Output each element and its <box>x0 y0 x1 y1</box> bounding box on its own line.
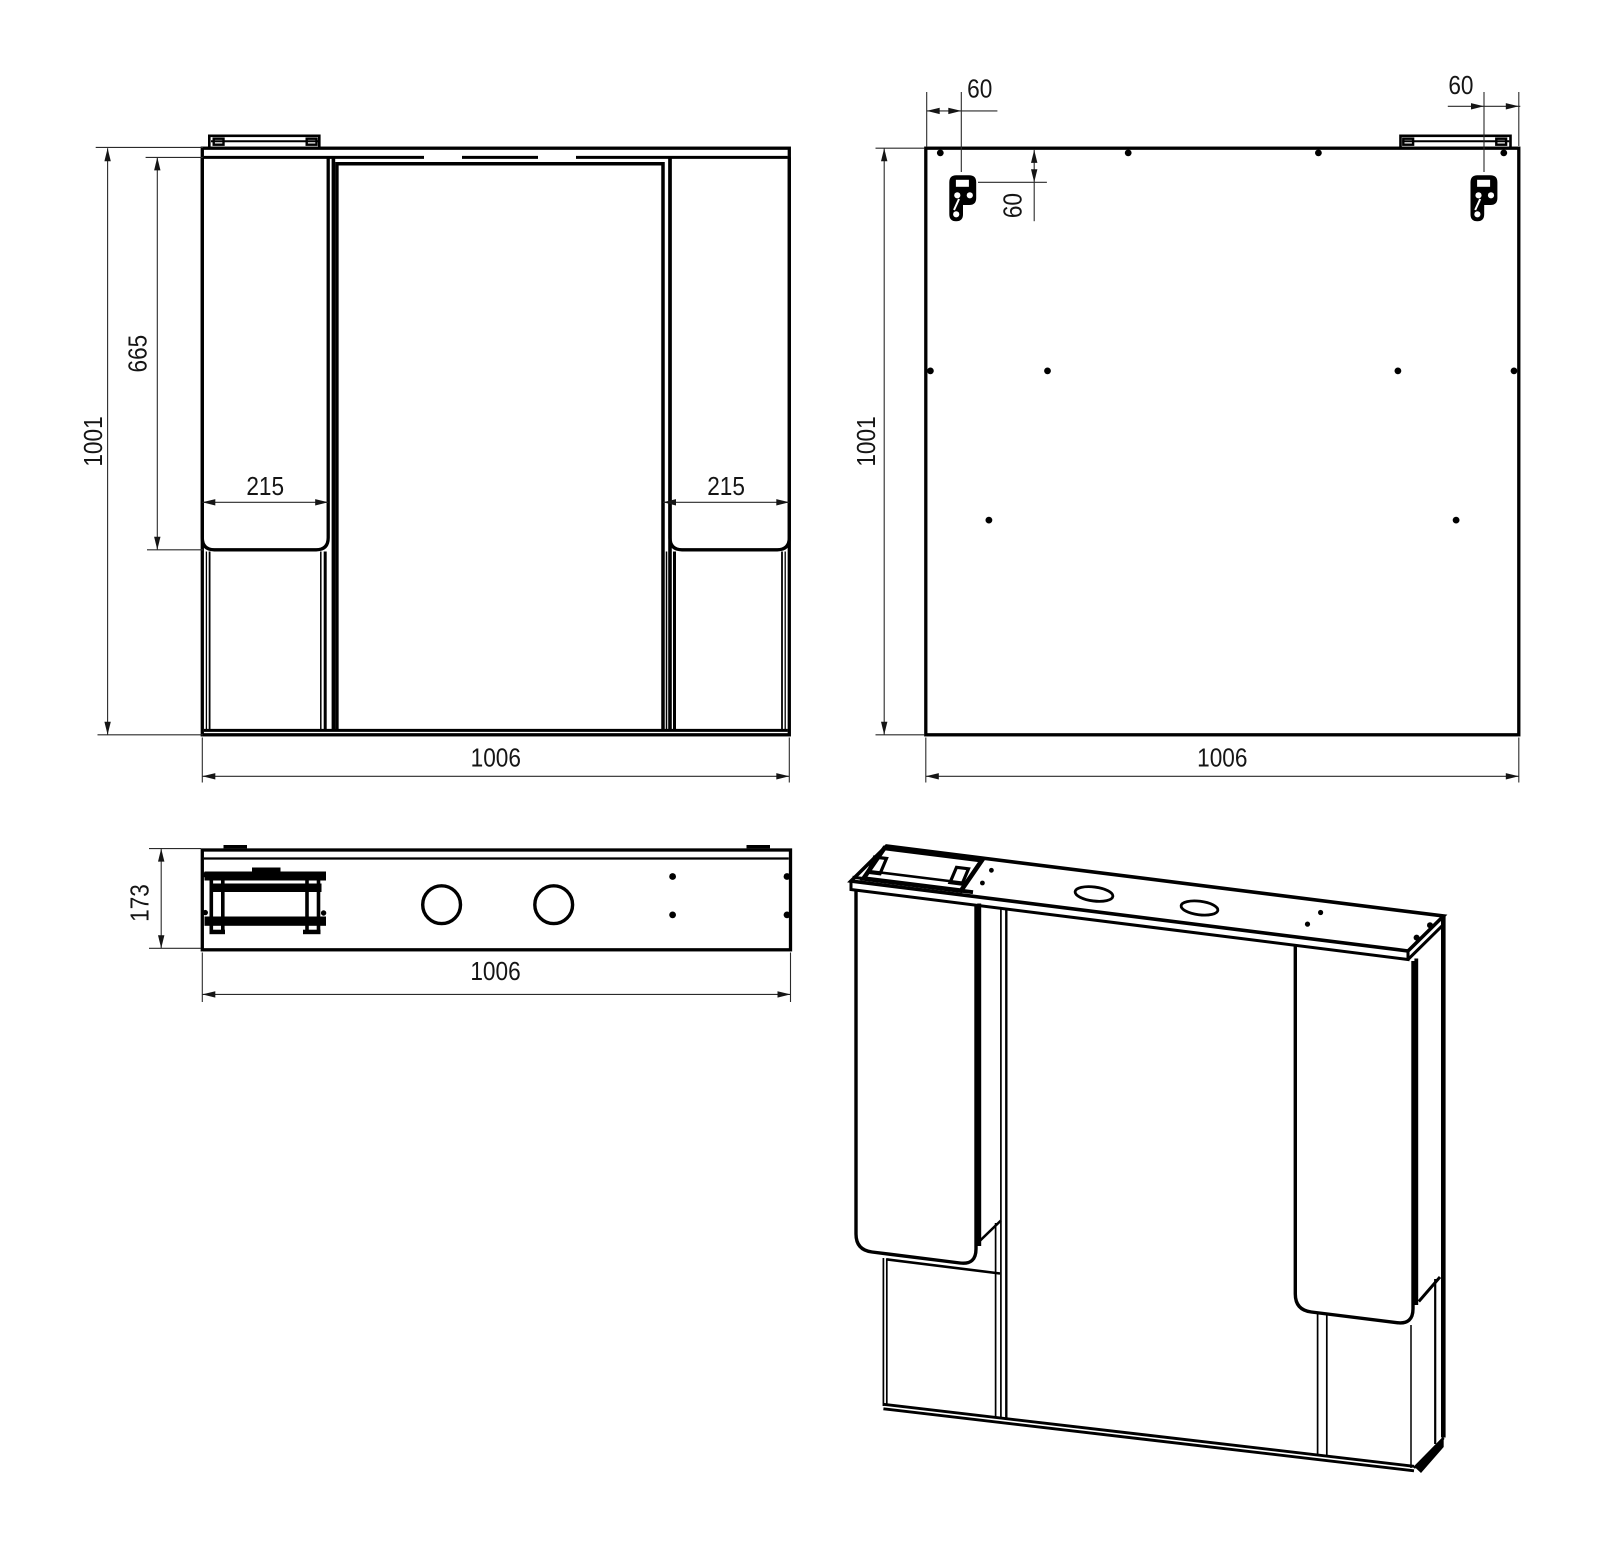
svg-text:665: 665 <box>124 335 153 373</box>
svg-text:173: 173 <box>126 884 155 922</box>
svg-text:1001: 1001 <box>853 416 882 466</box>
svg-text:60: 60 <box>1448 72 1473 101</box>
svg-text:1001: 1001 <box>79 416 108 466</box>
svg-text:1006: 1006 <box>1197 744 1247 773</box>
svg-text:215: 215 <box>707 473 745 502</box>
svg-text:1006: 1006 <box>470 958 520 987</box>
svg-text:215: 215 <box>246 473 284 502</box>
svg-text:60: 60 <box>967 75 992 104</box>
svg-text:60: 60 <box>999 193 1028 218</box>
svg-text:1006: 1006 <box>471 744 521 773</box>
